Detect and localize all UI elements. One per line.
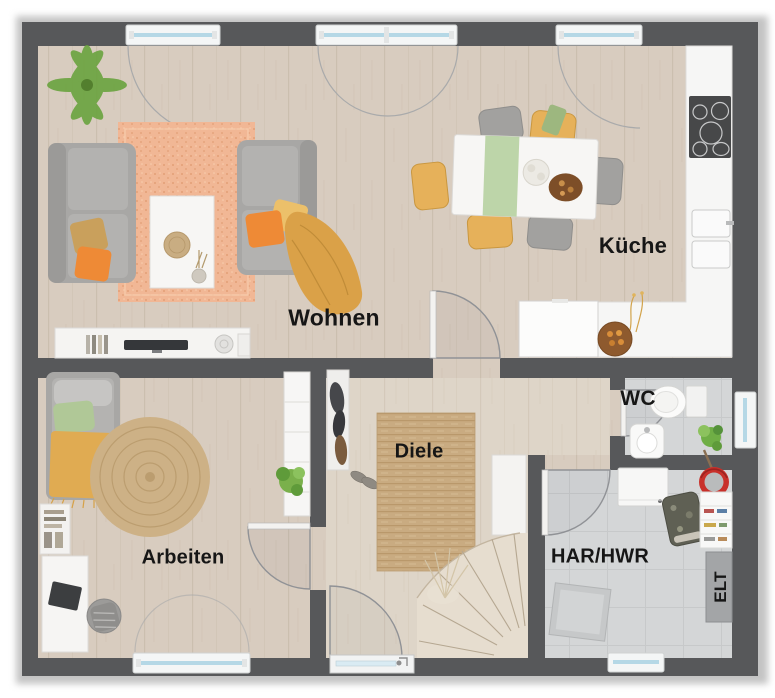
room-label-elt: ELT: [711, 571, 731, 602]
dryer-box: [549, 583, 611, 641]
sofa-left: [48, 143, 136, 283]
speaker: [215, 335, 233, 353]
tv: [124, 340, 188, 350]
green-pillow: [53, 400, 96, 434]
wall-utility-corner: [528, 455, 545, 470]
room-label-har-hwr: HAR/HWR: [551, 546, 649, 569]
pillow-orange-2: [245, 210, 285, 249]
room-label-arbeiten: Arbeiten: [142, 547, 225, 570]
wall-office-hall-lower: [310, 590, 326, 658]
coat-rack: [327, 370, 349, 470]
round-rug: [90, 417, 210, 537]
pillow-orange: [74, 246, 112, 282]
window-wc: [735, 392, 756, 448]
chair-gray-bottom: [527, 214, 574, 251]
window-kitchen: [556, 25, 642, 45]
window-living: [126, 25, 220, 45]
wc-sink: [630, 424, 664, 458]
wc-faucet: [644, 427, 650, 433]
wall-wc-left-bottom: [610, 436, 625, 455]
tv-sideboard: [55, 328, 250, 358]
door-leaf-utility: [542, 470, 548, 535]
door-leaf-office: [248, 523, 310, 529]
room-label-wohnen: Wohnen: [288, 305, 379, 332]
washing-machine: [618, 468, 668, 506]
toilet: [650, 386, 707, 418]
room-label-diele: Diele: [395, 441, 444, 464]
room-label-wc: WC: [620, 387, 655, 411]
entrance-door: [330, 655, 414, 673]
coffee-table: [150, 196, 214, 288]
hall-rug: [377, 413, 475, 571]
shelf-rack: [700, 492, 732, 548]
table-runner: [483, 136, 520, 217]
floor-plan: Wohnen Küche Arbeiten Diele WC HAR/HWR E…: [0, 0, 775, 698]
entrance-door-handle: [397, 661, 402, 666]
table-flowers: [523, 159, 550, 186]
room-label-kueche: Küche: [599, 233, 667, 259]
hall-cabinet: [492, 455, 526, 535]
faucet: [726, 221, 734, 225]
wall-office-hall-upper: [310, 378, 326, 527]
desk: [42, 556, 88, 652]
chair-yellow-left: [411, 161, 450, 210]
chair-yellow-bottom: [467, 213, 513, 250]
wall-kitchen-hall: [500, 358, 732, 378]
floor-plan-drawing: [0, 0, 775, 698]
desk-chair: [87, 599, 121, 633]
fruit-bowl: [598, 322, 632, 356]
fridge-cabinet: [519, 299, 598, 357]
bookshelf: [40, 504, 70, 554]
door-leaf-living: [430, 291, 436, 358]
entrance-door-panel: [336, 661, 396, 666]
cooktop: [689, 96, 731, 158]
window-center-double: [316, 25, 457, 45]
window-office: [133, 653, 250, 673]
window-utility: [608, 653, 664, 672]
